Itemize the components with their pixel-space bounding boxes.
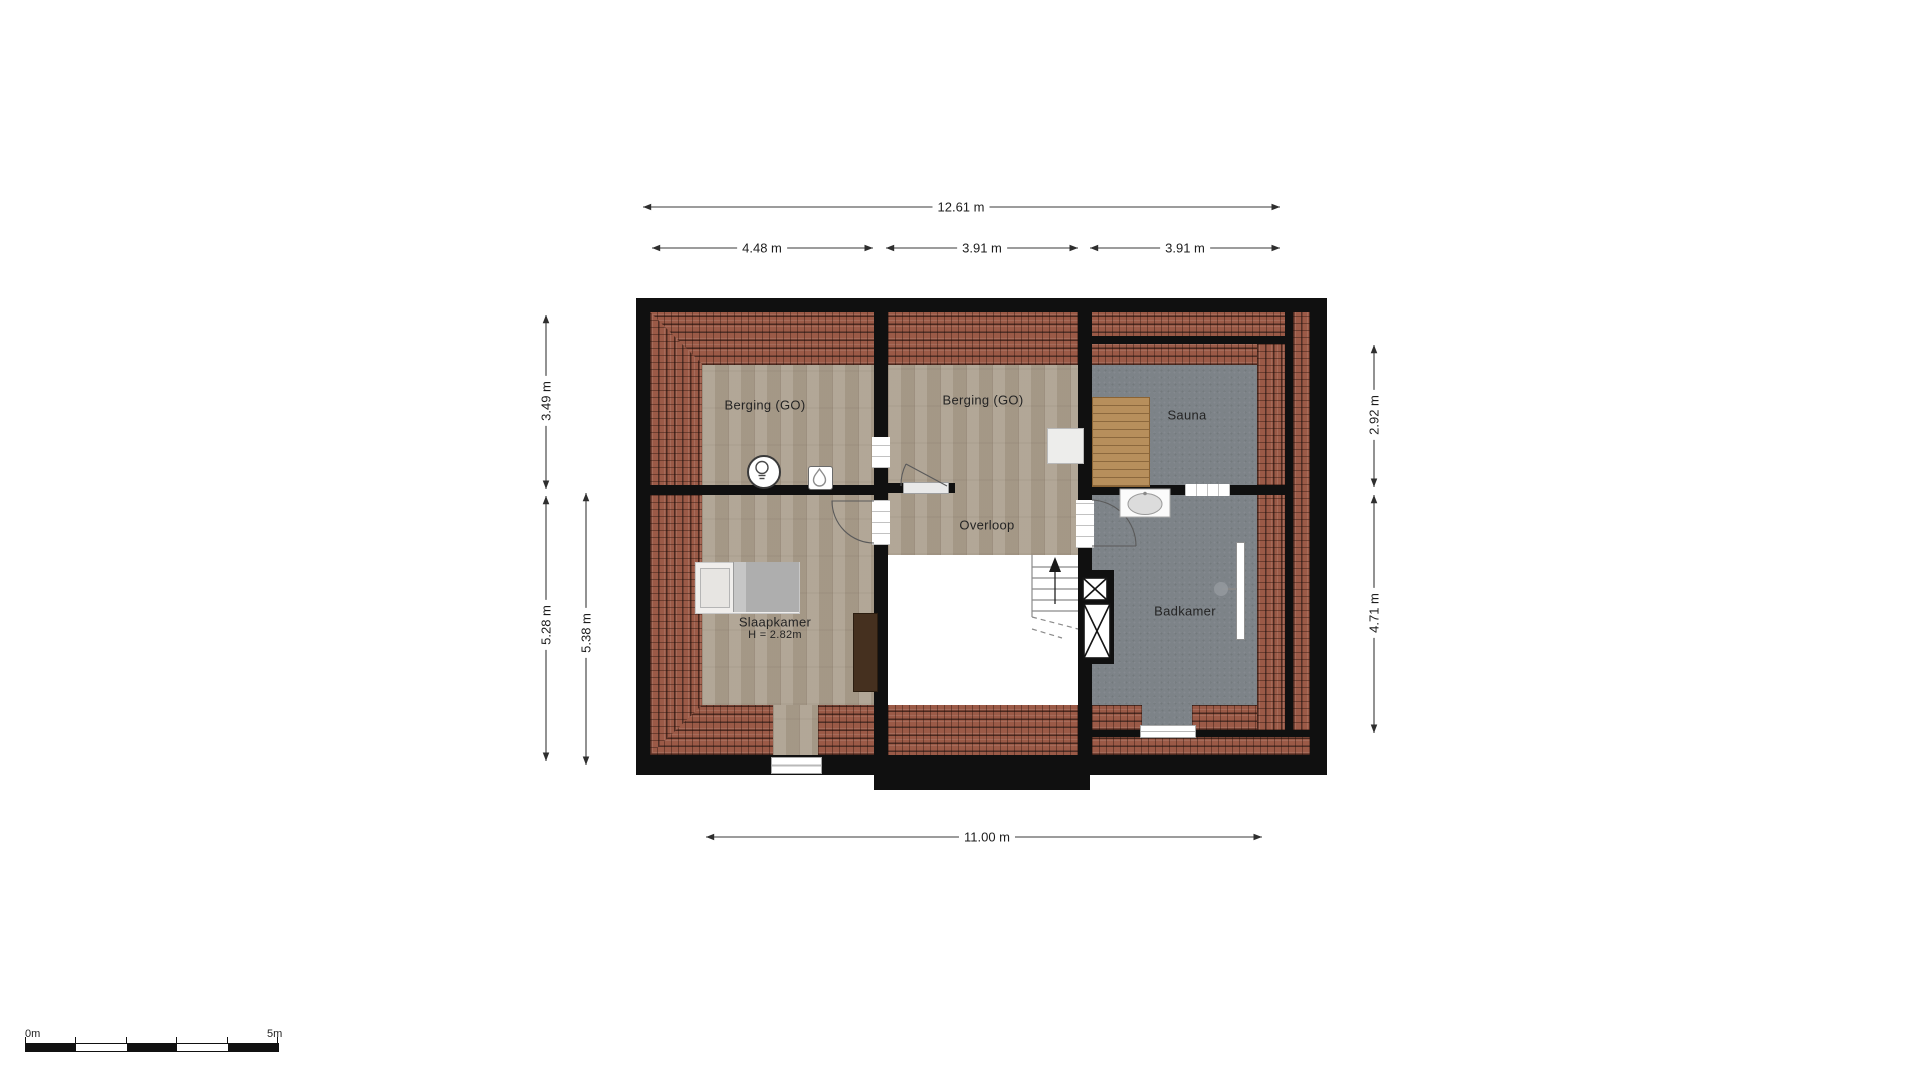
dim-top-middle: 3.91 m bbox=[957, 241, 1007, 256]
room-label-slaapkamer-height: H = 2.82m bbox=[748, 629, 802, 641]
roof-tiles-right-inner-band bbox=[1257, 344, 1285, 730]
scale-bar-segments bbox=[25, 1043, 279, 1052]
wall-outer-top bbox=[636, 298, 1327, 312]
boiler-flame-icon bbox=[808, 466, 833, 490]
sauna-glass-door bbox=[1185, 484, 1230, 496]
dim-bottom-total: 11.00 m bbox=[959, 830, 1015, 845]
roof-tiles-bottom-middle-band bbox=[888, 705, 1078, 760]
shower-screen bbox=[1236, 542, 1245, 640]
dim-left-inner: 5.38 m bbox=[579, 608, 594, 658]
window-badkamer-dormer bbox=[1140, 725, 1196, 738]
roof-tiles-left-band bbox=[650, 312, 702, 755]
floor-badkamer bbox=[1092, 495, 1257, 705]
dim-top-total: 12.61 m bbox=[933, 200, 990, 215]
wall-outer-left bbox=[636, 298, 650, 775]
dim-left-lower: 5.28 m bbox=[539, 600, 554, 650]
shower-head-icon bbox=[1214, 582, 1228, 596]
bed-pillow bbox=[700, 568, 730, 608]
roof-tiles-bottom-right-band bbox=[1092, 737, 1310, 755]
stairwell-void bbox=[888, 555, 1078, 705]
dresser-cabinet bbox=[853, 613, 878, 692]
room-label-slaapkamer: Slaapkamer bbox=[739, 615, 811, 630]
dim-right-upper: 2.92 m bbox=[1367, 390, 1382, 440]
scale-bar-end-label: 5m bbox=[267, 1028, 282, 1040]
room-label-badkamer: Badkamer bbox=[1154, 604, 1216, 619]
roof-beam-right-vertical bbox=[1285, 312, 1293, 730]
room-label-overloop: Overloop bbox=[959, 518, 1014, 533]
dim-top-left: 4.48 m bbox=[737, 241, 787, 256]
roof-tiles-right-outer-band bbox=[1293, 312, 1310, 730]
floor-badkamer-window-bay bbox=[1142, 705, 1192, 726]
dim-top-right: 3.91 m bbox=[1160, 241, 1210, 256]
window-slaapkamer-dormer bbox=[771, 757, 822, 774]
wall-shaft-block bbox=[1078, 570, 1114, 664]
roof-beam-right-horizontal bbox=[1092, 336, 1285, 344]
floor-berging1-slaapkamer bbox=[702, 365, 874, 705]
ceiling-lamp-icon bbox=[747, 455, 781, 489]
wall-outer-right bbox=[1310, 298, 1327, 775]
floor-slaapkamer-window-bay bbox=[773, 705, 818, 757]
wall-badkamer-bottom bbox=[1092, 730, 1310, 737]
bed-blanket bbox=[733, 562, 799, 612]
door-sill-berging2-overloop bbox=[903, 482, 949, 494]
wall-outer-bottom-middle-protrusion bbox=[874, 755, 1090, 790]
dim-left-upper: 3.49 m bbox=[539, 376, 554, 426]
floor-plan-canvas: Berging (GO) Berging (GO) Sauna Overloop… bbox=[0, 0, 1920, 1080]
dim-right-lower: 4.71 m bbox=[1367, 588, 1382, 638]
doorway-slaapkamer-overloop bbox=[872, 500, 890, 545]
roof-tiles-badkamer-left bbox=[1092, 705, 1142, 730]
room-label-berging2: Berging (GO) bbox=[943, 393, 1024, 408]
sauna-bench bbox=[1092, 397, 1150, 487]
room-label-sauna: Sauna bbox=[1167, 408, 1206, 423]
roof-tiles-badkamer-right bbox=[1192, 705, 1257, 730]
doorway-berging1-berging2 bbox=[872, 437, 890, 468]
scale-bar-start-label: 0m bbox=[25, 1028, 40, 1040]
doorway-overloop-badkamer bbox=[1076, 500, 1094, 548]
storage-cabinet-berging2 bbox=[1047, 428, 1084, 464]
room-label-berging1: Berging (GO) bbox=[725, 398, 806, 413]
